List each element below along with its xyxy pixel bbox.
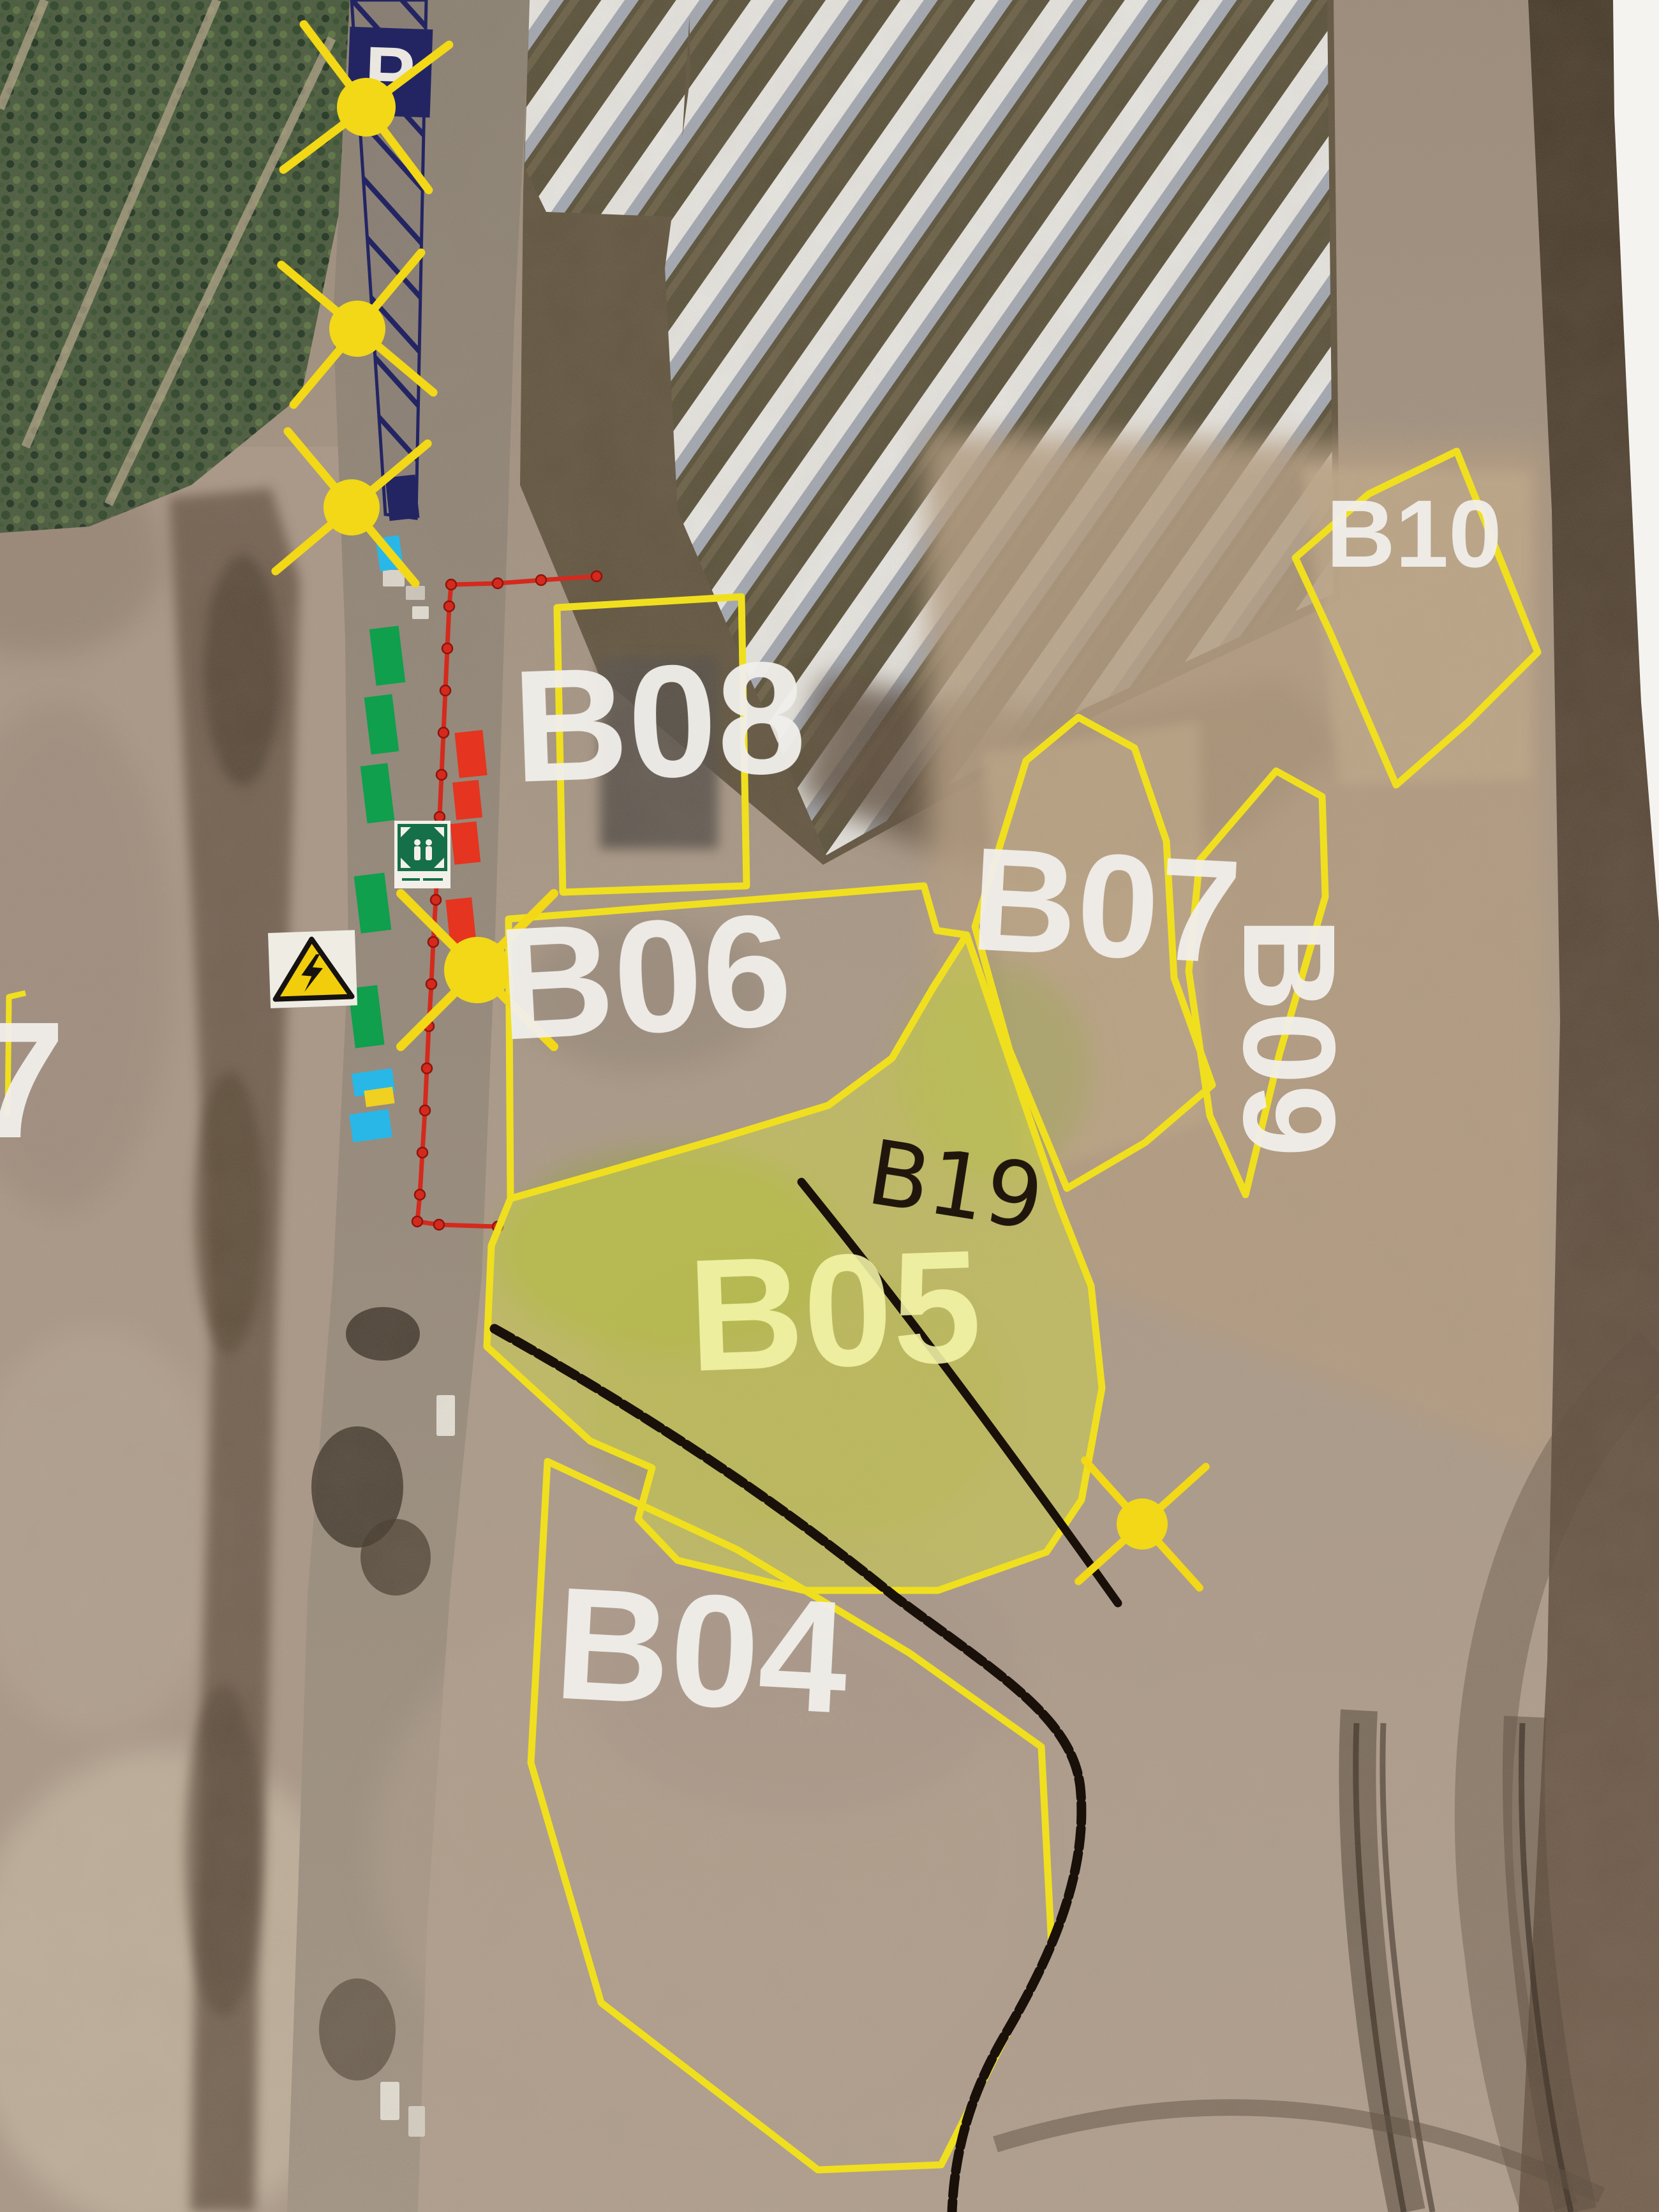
zone-label-b05: B05 [685,1216,984,1405]
marker-cyan [349,1109,392,1142]
zone-label-b07: B07 [967,816,1245,994]
map-canvas: P [0,0,1659,2212]
zone-label-b10: B10 [1326,480,1501,587]
aerial-site-map: P [0,0,1659,2212]
marker-red [450,821,480,865]
marker-red [452,780,482,820]
high-voltage-warning-sign [268,930,357,1008]
zone-label-b06: B06 [494,880,796,1073]
marker-red [454,730,487,778]
zone-label-b09: B09 [1216,917,1362,1157]
zone-label-partial-left: 7 [0,988,65,1173]
parking-strip-endblock [385,475,420,521]
assembly-point-sign [394,821,450,888]
zone-label-b08: B08 [510,627,808,816]
zone-label-b04: B04 [551,1553,852,1747]
